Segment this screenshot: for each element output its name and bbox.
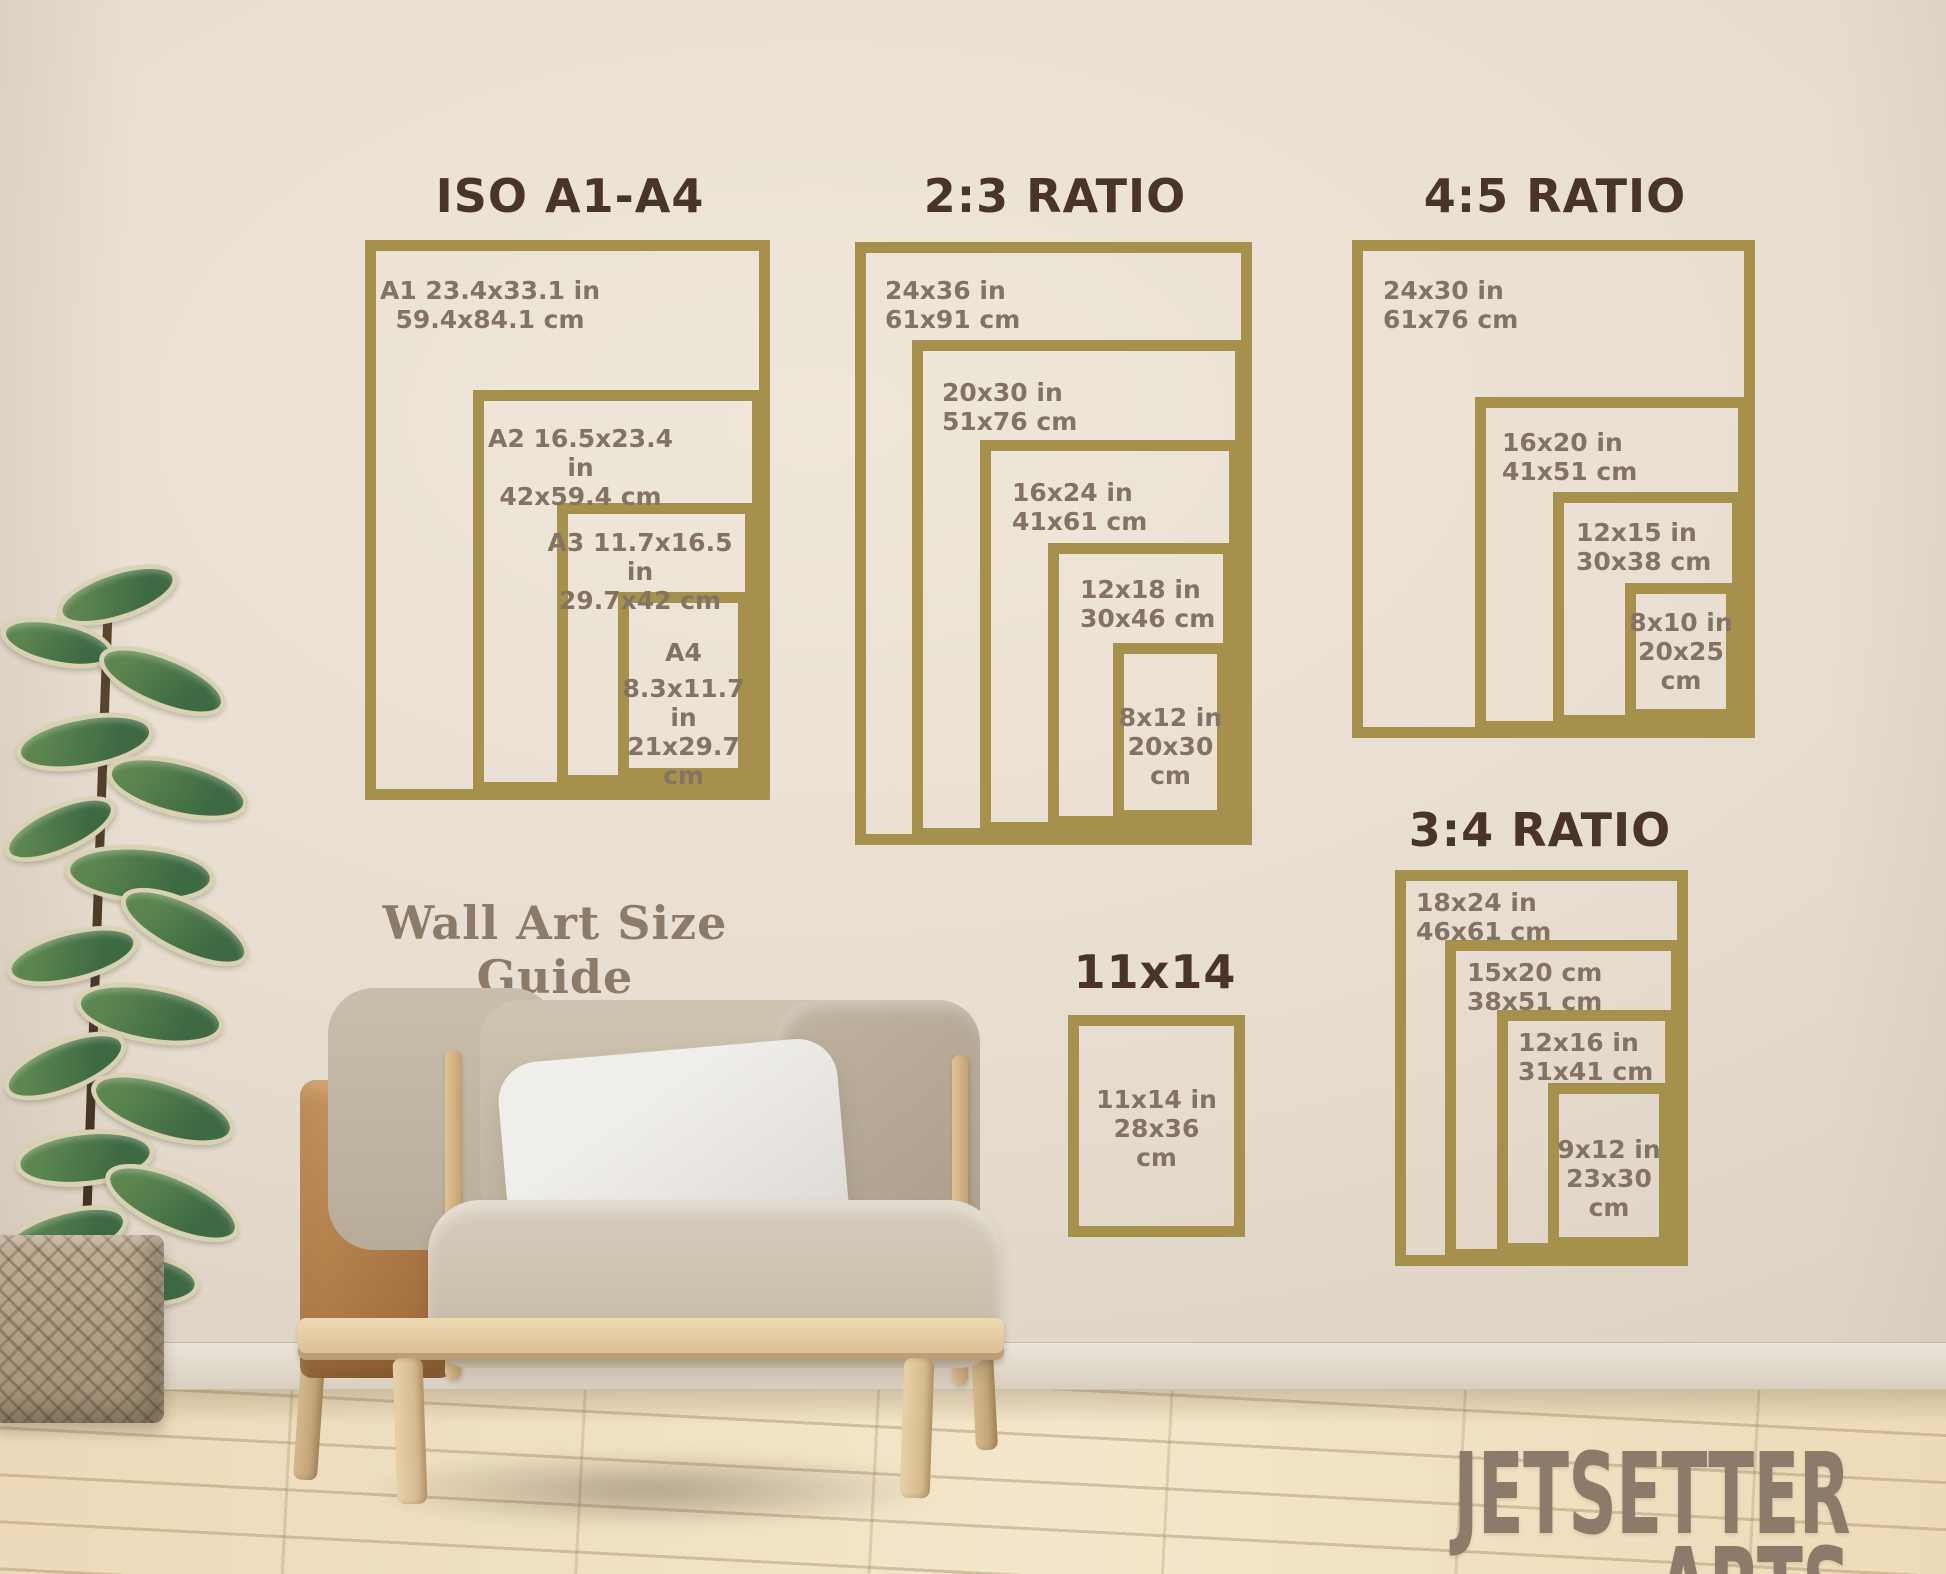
frame-label-12x15: 12x15 in30x38 cm [1576,518,1711,576]
chair-wood-rail [298,1318,1004,1360]
frame-label-24x30: 24x30 in61x76 cm [1383,276,1518,334]
section-title-3-4: 3:4 RATIO [1370,806,1710,854]
section-iso-a1-a4: ISO A1-A4 A1 23.4x33.1 in59.4x84.1 cm A2… [340,165,800,835]
frame-label-24x36: 24x36 in61x91 cm [885,276,1020,334]
frame-label-18x24: 18x24 in46x61 cm [1416,888,1551,946]
section-title-iso: ISO A1-A4 [340,172,800,220]
chair-leg [900,1358,935,1499]
frame-label-8x12: 8x12 in20x30cm [1113,703,1228,790]
frame-label-15x20: 15x20 cm38x51 cm [1467,958,1602,1016]
frame-label-a2: A2 16.5x23.4 in42x59.4 cm [473,424,688,511]
frame-label-12x16: 12x16 in31x41 cm [1518,1028,1653,1086]
frame-label-12x18: 12x18 in30x46 cm [1080,575,1215,633]
section-title-4-5: 4:5 RATIO [1330,172,1780,220]
frame-label-a3: A3 11.7x16.5 in29.7x42 cm [545,528,735,615]
chair-leg [392,1358,427,1505]
section-4-5-ratio: 4:5 RATIO 24x30 in61x76 cm 16x20 in41x51… [1330,165,1780,755]
frame-label-a4: A48.3x11.7 in21x29.7cm [618,638,749,790]
wicker-basket-pot [0,1235,164,1423]
brand-logo-text: JETSETTER ARTS [1430,1448,1850,1574]
section-3-4-ratio: 3:4 RATIO 18x24 in46x61 cm 15x20 cm38x51… [1370,795,1710,1275]
armchair [240,980,1050,1540]
frame-label-8x10: 8x10 in20x25cm [1625,608,1737,695]
frame-label-16x24: 16x24 in41x61 cm [1012,478,1147,536]
frame-label-16x20: 16x20 in41x51 cm [1502,428,1637,486]
section-title-2-3: 2:3 RATIO [830,172,1280,220]
frame-label-9x12: 9x12 in23x30cm [1548,1135,1670,1222]
section-11x14: 11x14 11x14 in28x36cm [1040,940,1270,1260]
room-scene: ISO A1-A4 A1 23.4x33.1 in59.4x84.1 cm A2… [0,0,1946,1574]
potted-plant [0,560,240,1440]
frame-label-a1: A1 23.4x33.1 in59.4x84.1 cm [365,276,615,334]
section-title-11x14: 11x14 [1040,948,1270,996]
plant-leaf [100,743,254,832]
frame-label-11x14: 11x14 in28x36cm [1068,1085,1245,1172]
frame-label-20x30: 20x30 in51x76 cm [942,378,1077,436]
section-2-3-ratio: 2:3 RATIO 24x36 in61x91 cm 20x30 in51x76… [830,165,1280,865]
